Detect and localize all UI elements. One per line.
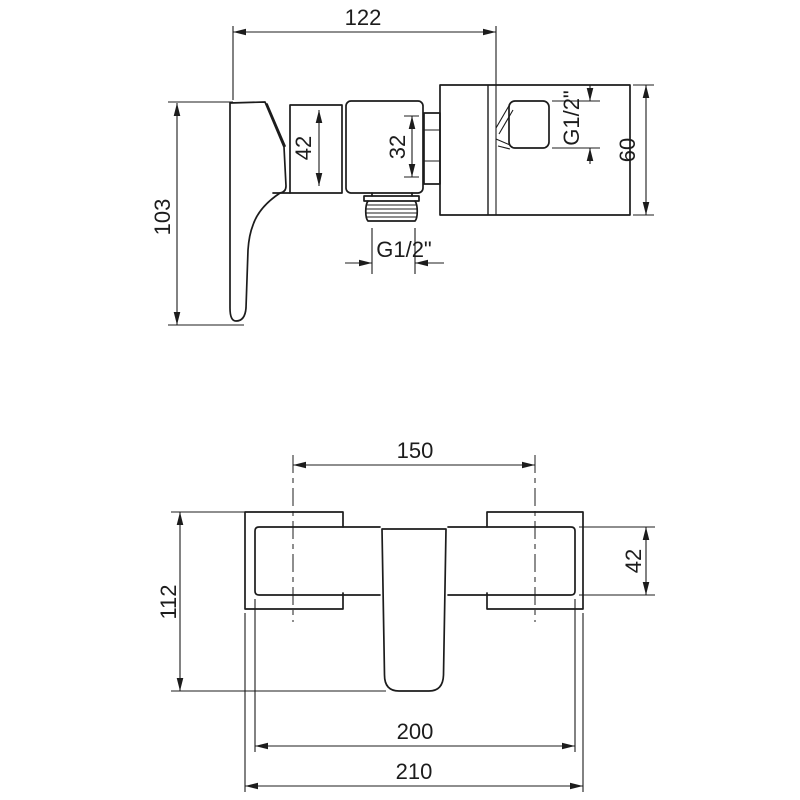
- dim-label-60: 60: [615, 138, 640, 162]
- dim-label-g12-wall: G1/2": [559, 90, 584, 146]
- dim-label-112: 112: [156, 584, 181, 619]
- dim-label-42-side: 42: [291, 136, 316, 160]
- dim-label-122: 122: [345, 5, 382, 30]
- dim-front-overall-width: 210: [245, 613, 583, 792]
- handle-chamfer-line: [267, 104, 285, 146]
- dim-label-103: 103: [150, 199, 175, 236]
- technical-drawing-canvas: 122 103 42 32: [0, 0, 800, 800]
- dim-side-overall-width: 122: [233, 5, 496, 215]
- nipple-cone-lines: [496, 104, 513, 149]
- handle-side-profile: [230, 102, 286, 321]
- dim-side-connection: 32: [385, 116, 419, 177]
- drawing-page: 122 103 42 32: [0, 0, 800, 800]
- dim-label-42-front: 42: [621, 549, 646, 573]
- dim-wall-outlet-thread: G1/2": [552, 85, 600, 164]
- dim-front-body-height: 42: [579, 527, 655, 595]
- dim-mount-centers: 150: [293, 438, 535, 468]
- dim-bottom-outlet-thread: G1/2": [345, 228, 444, 274]
- handle-front-profile: [382, 529, 446, 691]
- wall-plate-side: [440, 85, 630, 215]
- dim-wall-plate-height: 60: [615, 85, 654, 215]
- wall-outlet-nipple: [509, 101, 549, 148]
- mixer-body-front: [255, 527, 575, 595]
- dim-label-150: 150: [397, 438, 434, 463]
- side-view: 122 103 42 32: [150, 5, 654, 325]
- dim-side-cartridge-height: 42: [291, 110, 322, 186]
- hex-adapter: [424, 113, 440, 184]
- threaded-outlet: [364, 193, 419, 221]
- dim-front-overall-height: 112: [156, 512, 386, 691]
- dim-body-width: 200: [255, 599, 575, 752]
- dim-label-g12-bottom: G1/2": [376, 237, 432, 262]
- dim-label-200: 200: [397, 719, 434, 744]
- front-view: 150 112 42 200: [156, 438, 655, 792]
- dim-label-210: 210: [396, 759, 433, 784]
- dim-label-32: 32: [385, 135, 410, 159]
